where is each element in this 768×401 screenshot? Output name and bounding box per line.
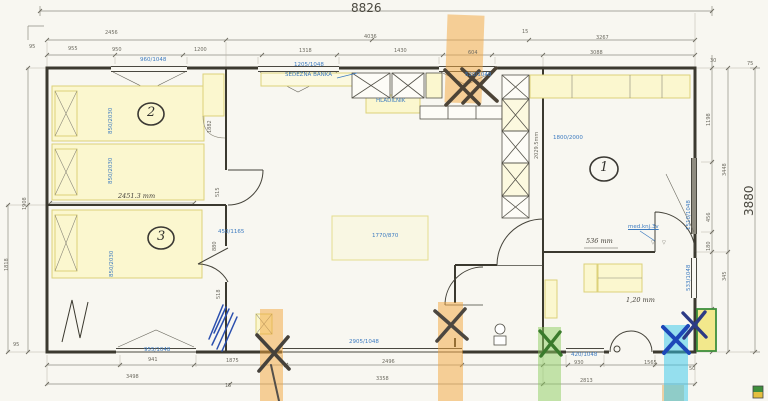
dim-label: 930	[574, 361, 584, 366]
dim-label: 3267	[596, 36, 609, 41]
dim-label: 3448	[723, 163, 728, 176]
dim-label: 941	[148, 358, 158, 363]
bed-label: 850/2030	[109, 108, 115, 134]
window-label: 520/1048	[465, 73, 491, 79]
level-symbol: ▽	[662, 241, 666, 246]
floor-plan-drawing	[0, 0, 768, 401]
wardrobe-room1	[530, 75, 690, 98]
dim-label: 518	[217, 289, 222, 299]
window-label: 960/1048	[140, 58, 166, 64]
bench-label: SEDEŽNA BANKA	[285, 73, 332, 79]
dim-label: 456	[707, 212, 712, 222]
overall-width-dim: 8826	[351, 2, 382, 14]
dim-label: 604	[468, 51, 478, 56]
note-label: med.knj.3v	[628, 225, 659, 231]
dim-label: 15	[225, 384, 231, 389]
toilet	[495, 324, 505, 334]
room-number-2: 2	[147, 106, 155, 119]
dim-label: 3498	[126, 375, 139, 380]
dim-label: 15	[522, 30, 528, 35]
dim-label: 1875	[226, 359, 239, 364]
wardrobe-room2	[203, 74, 224, 116]
level-symbol: ▽	[651, 241, 655, 246]
dim-label: 180	[707, 241, 712, 251]
handwritten-dim: 2451.3 mm	[118, 193, 155, 200]
dim-label: 75	[747, 62, 753, 67]
handwritten-dim: 1,20 mm	[626, 297, 655, 304]
window-label: 1510/1048	[687, 200, 693, 230]
window-label: 2905/1048	[349, 340, 379, 346]
dim-label: 950	[112, 48, 122, 53]
dim-label: 4036	[364, 35, 377, 40]
dim-label: 30	[710, 59, 716, 64]
dim-label: 1198	[707, 113, 712, 126]
dim-label: 515	[216, 187, 221, 197]
table-label: 1770/870	[372, 234, 398, 240]
fridge-label: HLADILNIK	[376, 99, 405, 105]
dim-label: 2456	[105, 31, 118, 36]
dim-label: 2813	[580, 379, 593, 384]
window-label: 955/1048	[144, 348, 170, 354]
cabinet-label: 450/1165	[218, 230, 244, 236]
dim-label: 2496	[382, 360, 395, 365]
dim-label: 1565	[644, 361, 657, 366]
dim-label: 955	[68, 47, 78, 52]
dim-label: 50	[689, 367, 695, 372]
window-label: 533/1048	[687, 265, 693, 291]
room-number-1: 1	[600, 161, 608, 174]
dim-label: 3088	[590, 51, 603, 56]
dim-label: 2029.5mm	[535, 132, 540, 159]
dim-label: 345	[723, 271, 728, 281]
dim-label: 1430	[394, 49, 407, 54]
dim-label: 1908	[23, 197, 28, 210]
overall-height-dim: 3880	[743, 185, 755, 216]
dim-label: 1318	[299, 49, 312, 54]
dim-label: 1882	[208, 120, 213, 133]
bed-label: 850/2030	[109, 158, 115, 184]
window-label: 420/1048	[571, 353, 597, 359]
room-number-3: 3	[157, 230, 165, 243]
dim-label: 1818	[5, 258, 10, 271]
floor-plan-scan: 8826 3880 2 3 1 960/1048 1205/1048 SEDEŽ…	[0, 0, 768, 401]
bed-label: 850/2030	[110, 251, 116, 277]
dim-label: 1200	[194, 48, 207, 53]
window-label: 1205/1048	[294, 63, 324, 69]
green-highlight	[538, 327, 561, 401]
dim-label: 95	[13, 343, 19, 348]
dim-label: 880	[213, 241, 218, 251]
bed-label: 1800/2000	[553, 136, 583, 142]
dim-label: 3358	[376, 377, 389, 382]
dim-label: 95	[29, 45, 35, 50]
legend-swatch	[753, 386, 763, 398]
handwritten-dim: 536 mm	[586, 238, 613, 245]
